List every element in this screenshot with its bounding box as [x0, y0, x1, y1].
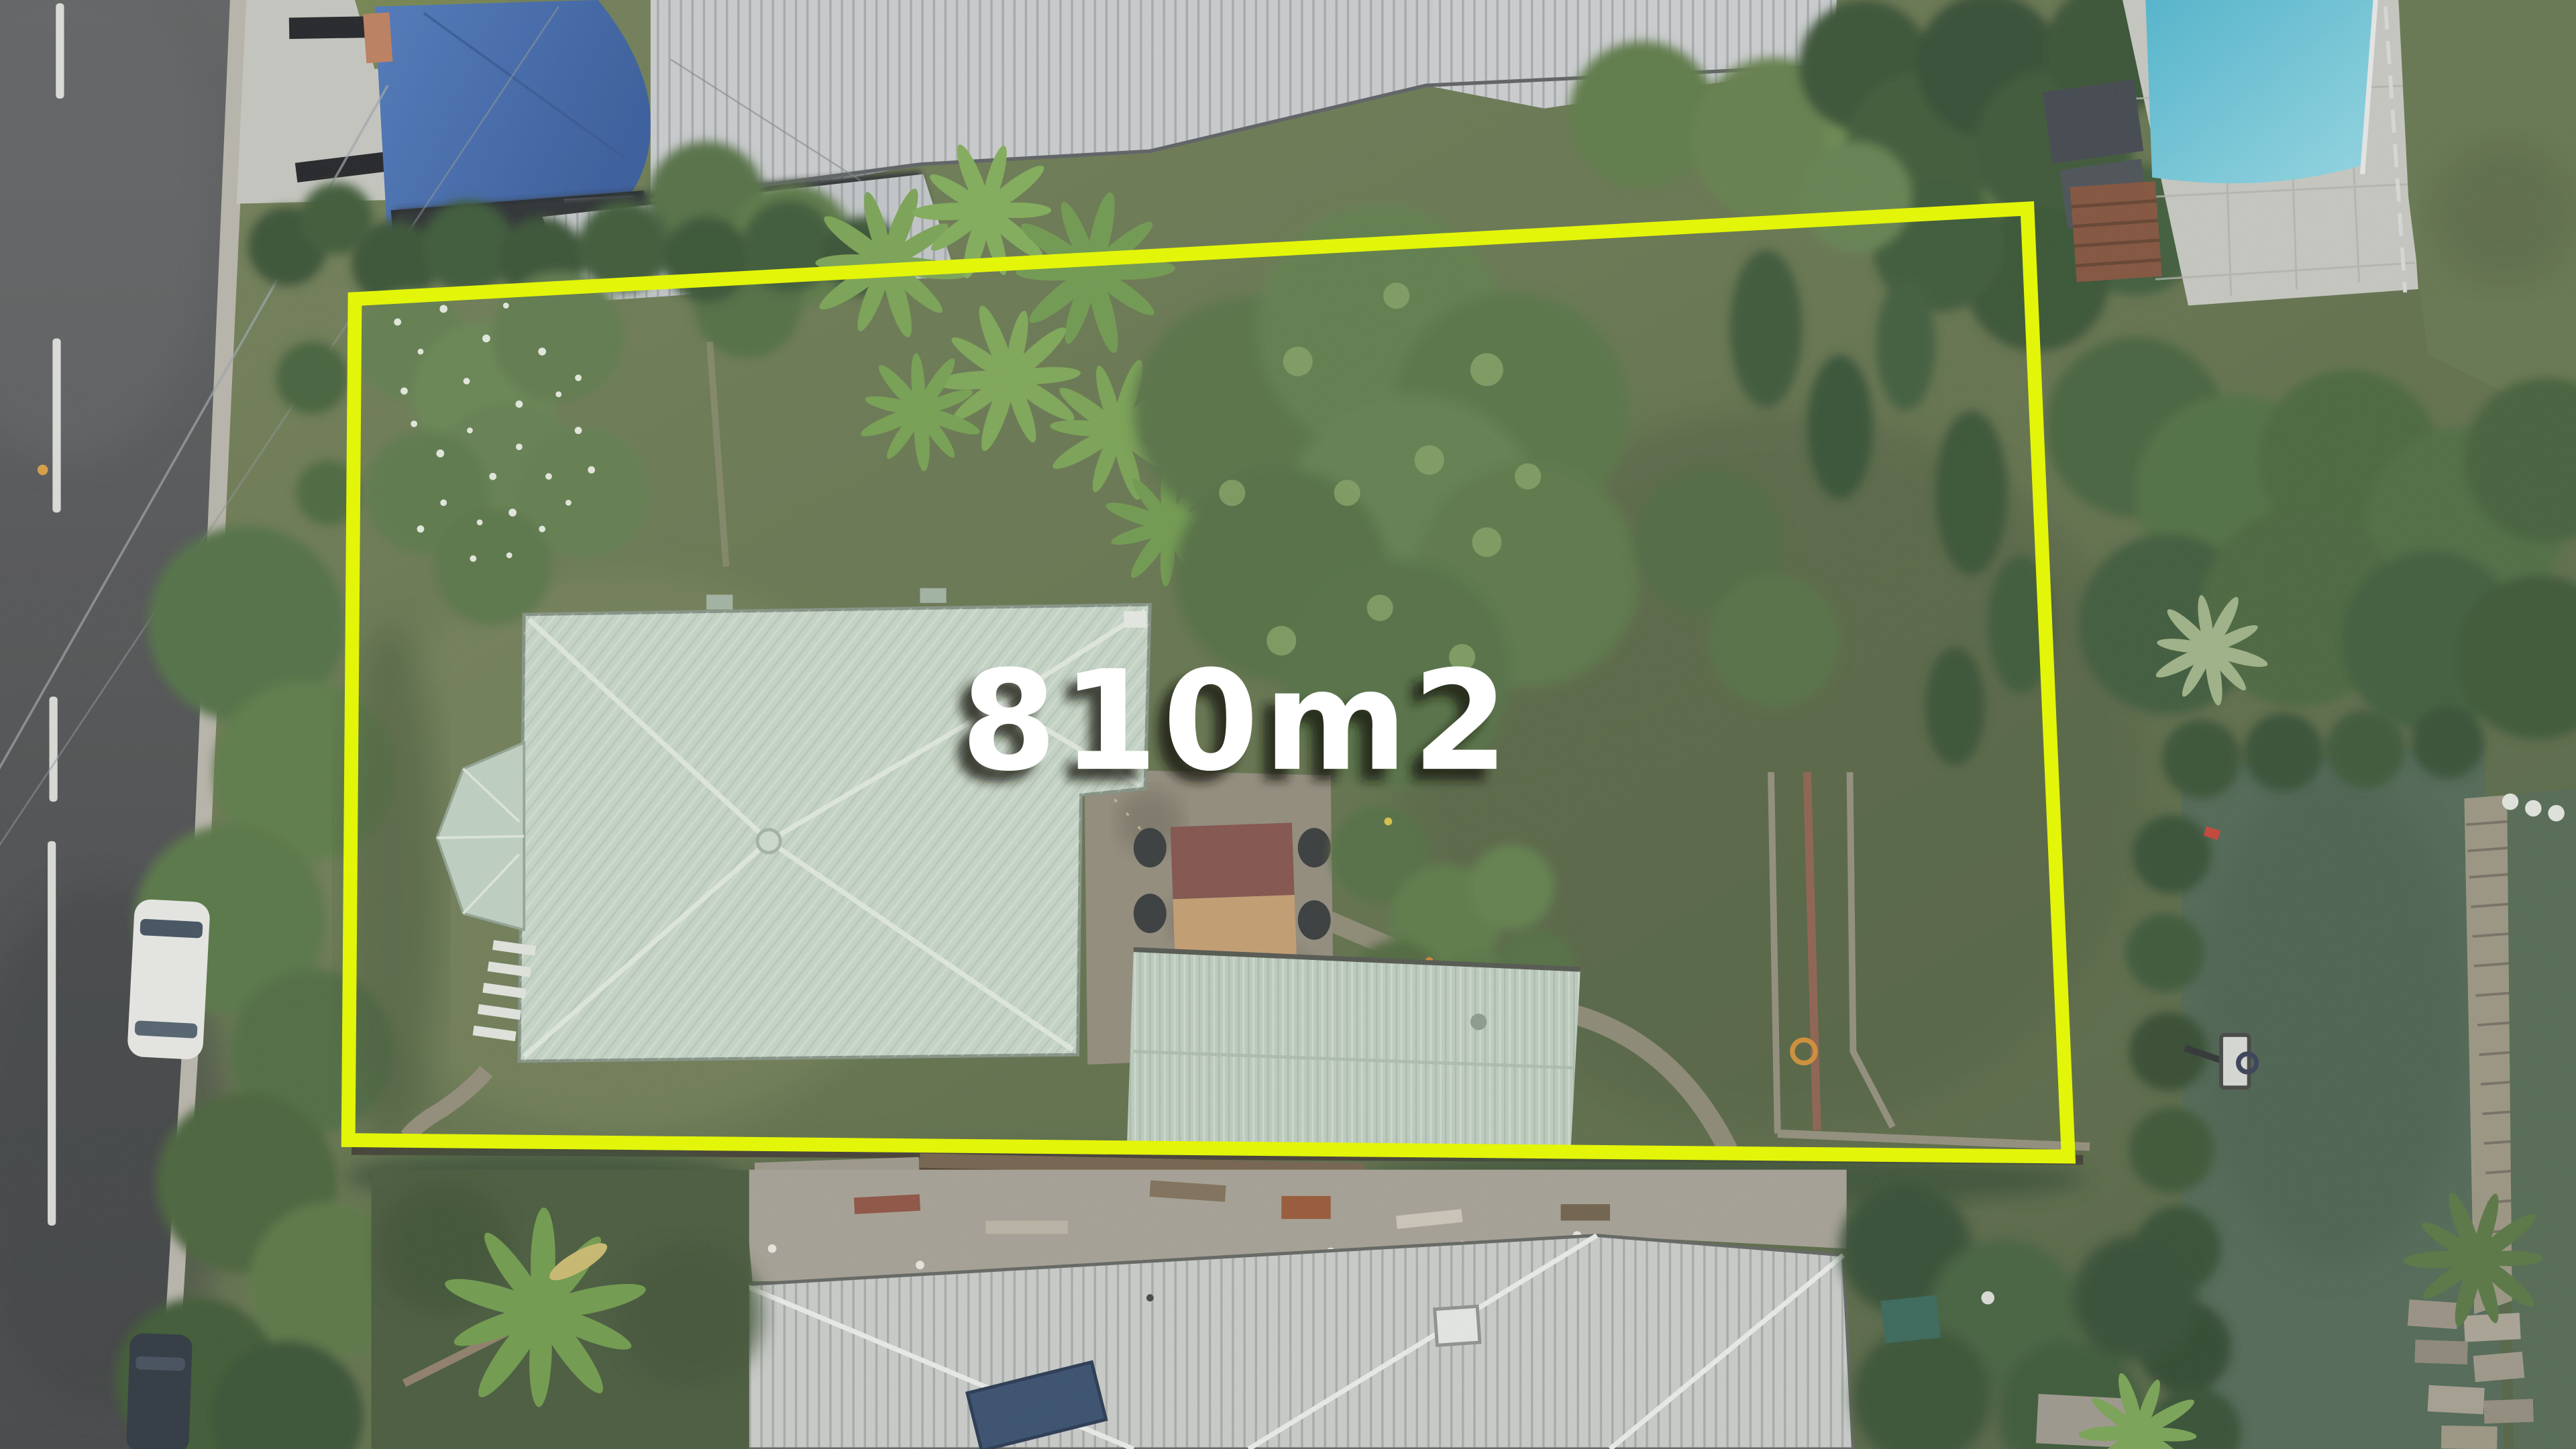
area-label-text: 810m2 — [961, 641, 1513, 802]
area-label: 810m2 810m2 — [949, 641, 1513, 813]
aerial-photo: 810m2 810m2 — [0, 0, 2576, 1449]
aerial-photo-canvas: 810m2 810m2 — [0, 0, 2576, 1449]
